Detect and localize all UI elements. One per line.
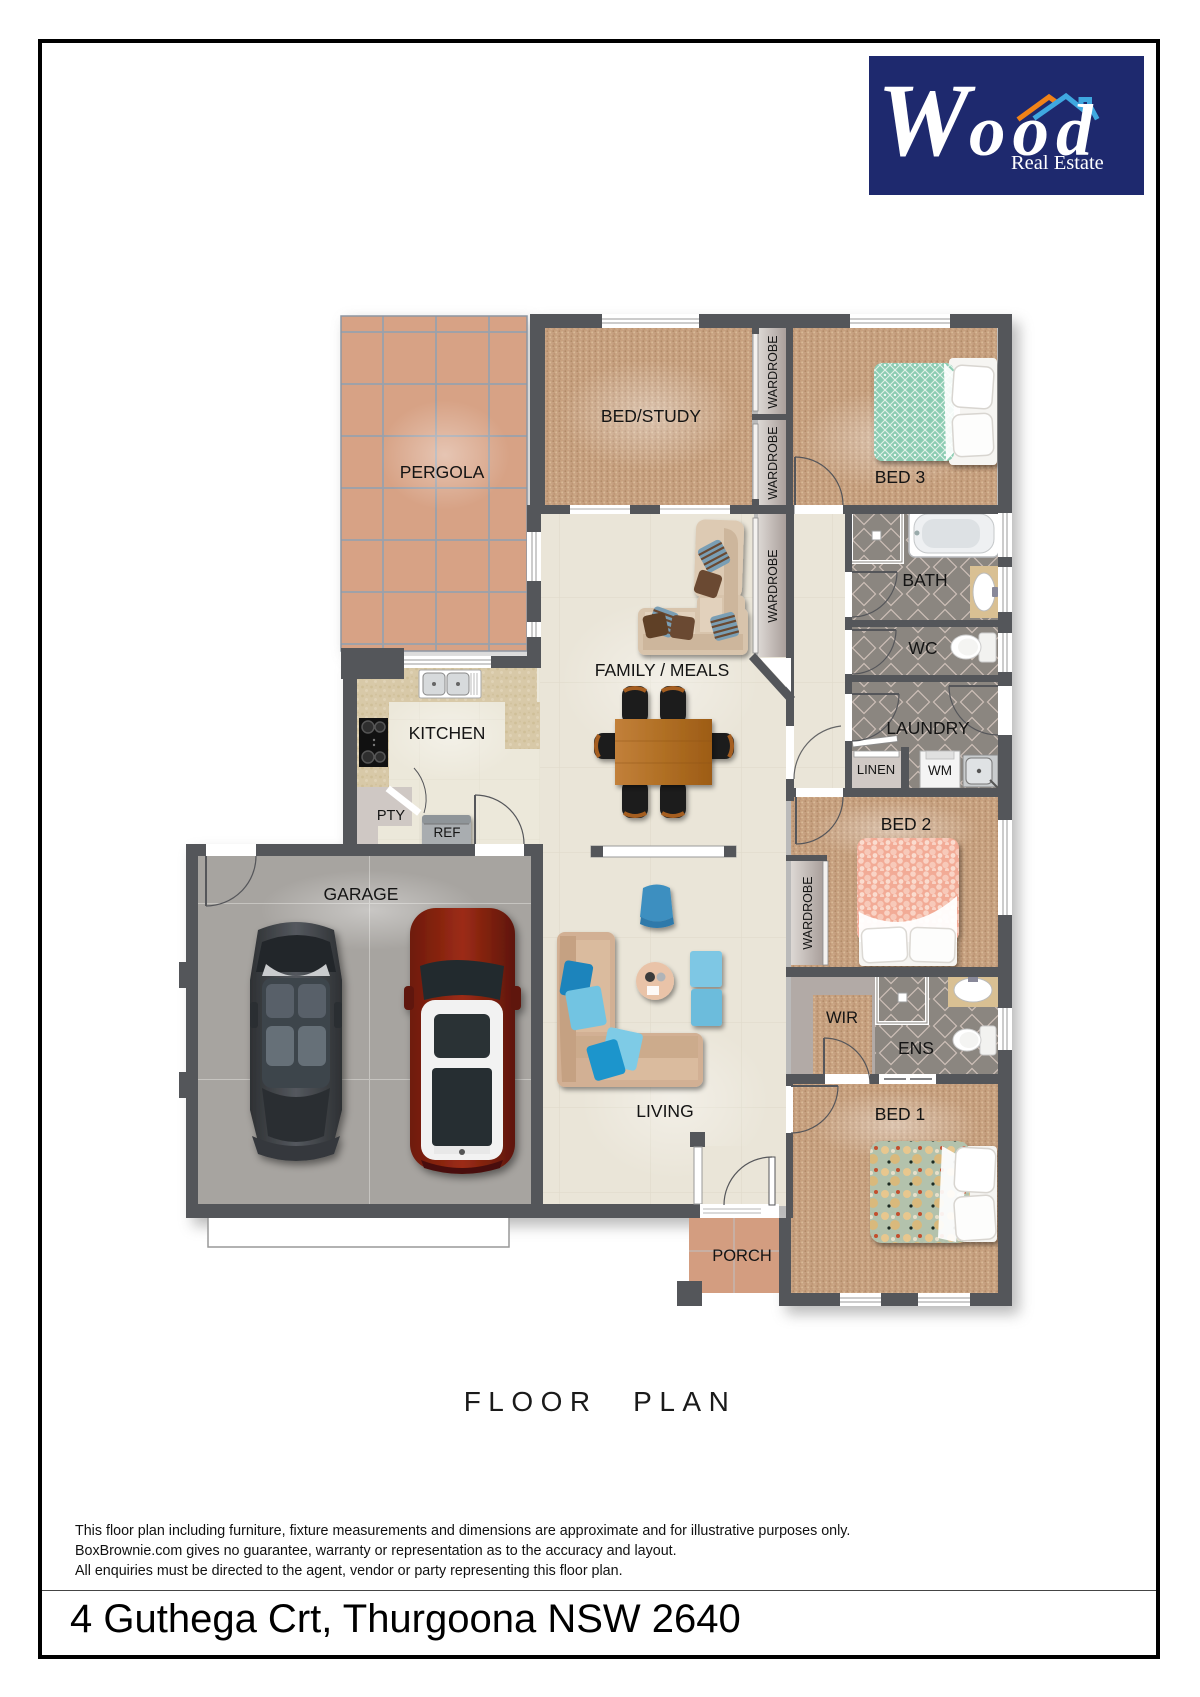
svg-text:WARDROBE: WARDROBE (801, 876, 815, 949)
svg-text:WARDROBE: WARDROBE (766, 335, 780, 408)
svg-text:GARAGE: GARAGE (324, 884, 399, 904)
svg-text:PTY: PTY (377, 808, 406, 824)
svg-text:WC: WC (908, 638, 937, 658)
svg-text:PERGOLA: PERGOLA (400, 462, 485, 482)
svg-text:ENS: ENS (898, 1038, 934, 1058)
svg-text:REF: REF (434, 825, 461, 840)
svg-text:WARDROBE: WARDROBE (766, 549, 780, 622)
svg-text:LINEN: LINEN (857, 762, 895, 777)
svg-text:BED 2: BED 2 (881, 814, 932, 834)
svg-text:BED 1: BED 1 (875, 1104, 926, 1124)
svg-text:BED 3: BED 3 (875, 467, 926, 487)
svg-text:PORCH: PORCH (712, 1247, 772, 1265)
svg-text:WM: WM (928, 763, 952, 778)
svg-text:BATH: BATH (902, 570, 947, 590)
svg-text:FAMILY / MEALS: FAMILY / MEALS (595, 660, 730, 680)
svg-text:BED/STUDY: BED/STUDY (601, 406, 701, 426)
svg-text:LAUNDRY: LAUNDRY (886, 718, 970, 738)
svg-text:WIR: WIR (826, 1009, 858, 1027)
svg-text:KITCHEN: KITCHEN (409, 723, 486, 743)
svg-text:WARDROBE: WARDROBE (766, 426, 780, 499)
svg-text:LIVING: LIVING (636, 1101, 693, 1121)
